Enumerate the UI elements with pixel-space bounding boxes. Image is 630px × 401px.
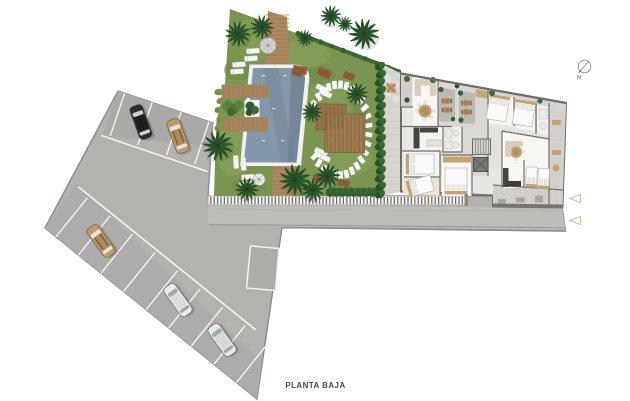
svg-text:N: N [577,75,581,81]
svg-text:PLANTA BAJA: PLANTA BAJA [285,381,345,390]
